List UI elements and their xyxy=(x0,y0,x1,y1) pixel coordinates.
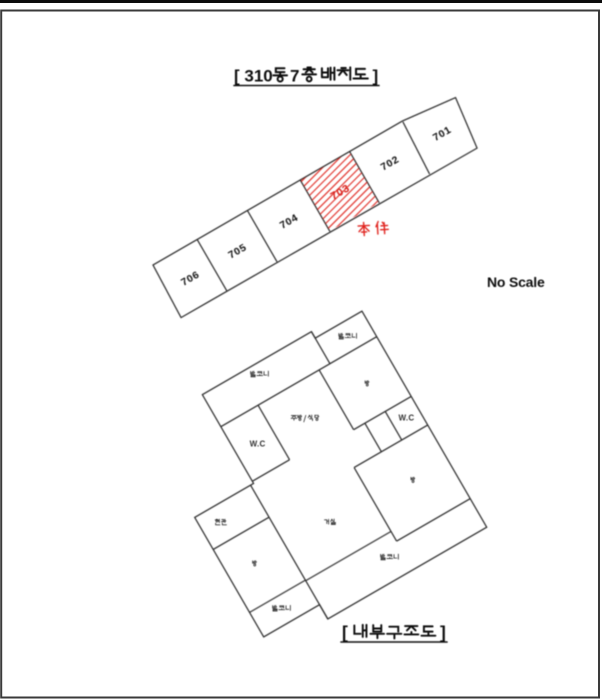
svg-text:]: ] xyxy=(440,623,446,643)
svg-text:7: 7 xyxy=(290,67,299,86)
svg-text:704: 704 xyxy=(278,212,301,232)
svg-text:702: 702 xyxy=(379,153,402,173)
svg-text:701: 701 xyxy=(431,124,454,144)
svg-text:706: 706 xyxy=(179,269,202,289)
svg-text:]: ] xyxy=(373,67,379,86)
svg-text:[: [ xyxy=(342,623,348,643)
svg-text:W.C: W.C xyxy=(398,413,414,422)
svg-text:No Scale: No Scale xyxy=(487,274,545,290)
svg-text:W.C: W.C xyxy=(250,439,266,448)
svg-text:705: 705 xyxy=(226,241,249,261)
svg-text:[ 310: [ 310 xyxy=(234,67,273,86)
